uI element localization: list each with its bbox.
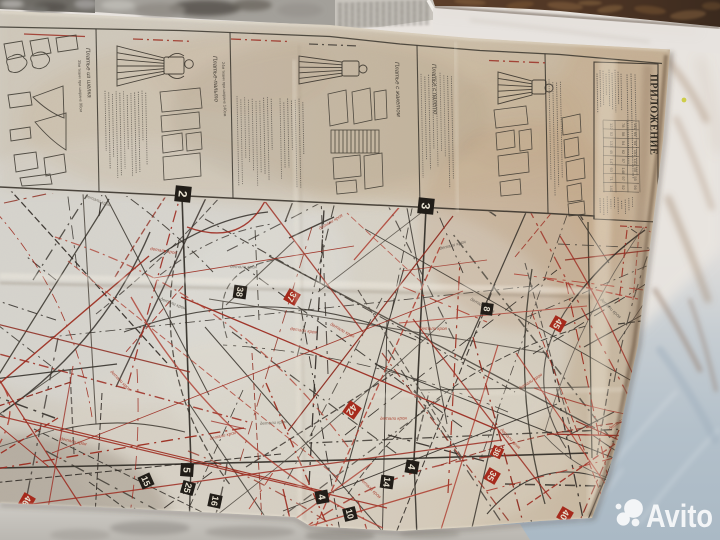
- svg-text:Avito: Avito: [646, 498, 713, 534]
